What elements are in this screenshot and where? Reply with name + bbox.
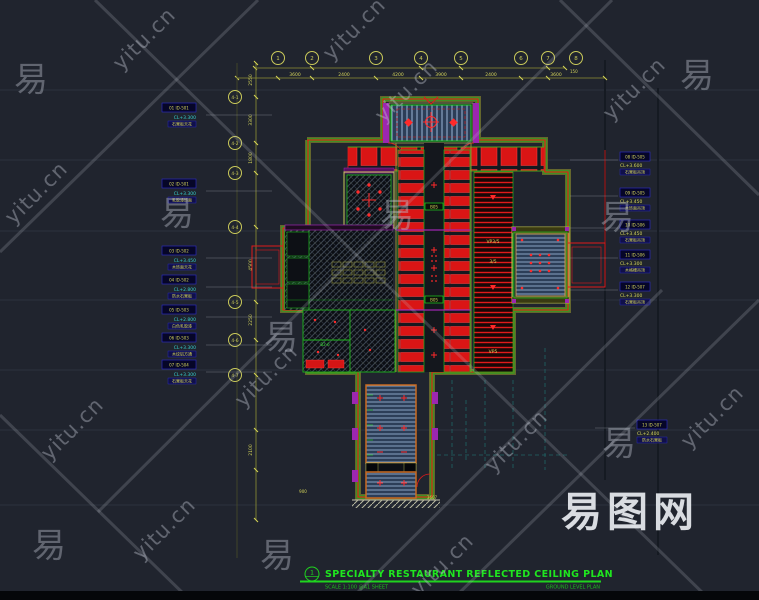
private-room-ceiling [344,168,394,228]
svg-text:4-3: 4-3 [231,171,238,177]
svg-text:防水石膏板: 防水石膏板 [172,293,192,299]
detail-number: 1 [310,570,314,577]
svg-text:5: 5 [459,56,463,62]
svg-text:CL+3.300: CL+3.300 [620,261,642,267]
drawing-subtitle: GROUND LEVEL PLAN [546,585,600,591]
svg-text:2: 2 [310,56,314,62]
dim-text: 4200 [392,72,404,78]
svg-text:石膏板吊顶: 石膏板吊顶 [625,299,645,305]
svg-text:09 ID-505: 09 ID-505 [625,191,645,196]
dim-text: 2400 [485,72,497,78]
stair-dim-text: 900 [299,489,307,494]
dim-text: 3300 [248,114,254,126]
vp-label: VP3/5 [486,239,499,245]
svg-text:4-1: 4-1 [231,95,238,101]
svg-text:4-5: 4-5 [231,300,238,306]
cad-viewport: 3600 2400 4200 3900 2400 3600 150 2550 3… [0,0,759,600]
svg-text:白色乳胶漆: 白色乳胶漆 [172,323,192,329]
svg-text:石膏板天花: 石膏板天花 [172,378,192,384]
svg-text:02 ID-501: 02 ID-501 [169,182,189,187]
svg-text:6: 6 [519,56,523,62]
svg-text:03 ID-502: 03 ID-502 [169,249,189,254]
portico-column-left [383,103,389,143]
ground-hatch [352,500,440,508]
svg-text:08 ID-505: 08 ID-505 [625,155,645,160]
svg-text:石膏板吊顶: 石膏板吊顶 [625,169,645,175]
svg-text:木饰面天花: 木饰面天花 [172,264,192,270]
svg-text:木饰面吊顶: 木饰面吊顶 [625,205,645,211]
ceiling-plan-drawing: 3600 2400 4200 3900 2400 3600 150 2550 3… [0,0,759,600]
dim-text: 4500 [248,259,254,271]
svg-text:06 ID-503: 06 ID-503 [169,336,189,341]
svg-text:石膏板吊顶: 石膏板吊顶 [625,237,645,243]
svg-text:CL+3.300: CL+3.300 [620,293,642,299]
svg-text:CL+3.450: CL+3.450 [620,231,642,237]
svg-text:07 ID-504: 07 ID-504 [169,363,189,368]
bottom-black-bar [0,591,759,600]
aisle-tag: B05 [430,298,438,303]
dim-text: 3600 [289,72,301,78]
svg-text:CL+3.300: CL+3.300 [174,372,196,378]
vp-label: 3/5 [489,259,496,265]
svg-text:乳胶漆饰面: 乳胶漆饰面 [172,197,192,203]
room-tag: B2-6 [320,342,330,347]
drawing-scale: SCALE 1:100 @A1 SHEET [325,585,389,591]
dim-text: 2100 [248,444,254,456]
svg-text:CL+3.450: CL+3.450 [174,258,196,264]
dim-text: 3900 [435,72,447,78]
svg-text:CL+2.400: CL+2.400 [637,431,659,437]
svg-text:CL+3.450: CL+3.450 [620,199,642,205]
blue-slat-room [512,227,569,303]
svg-text:CL+3.600: CL+3.600 [620,163,642,169]
dim-text: 2250 [248,314,254,326]
svg-text:11 ID-506: 11 ID-506 [625,253,645,258]
svg-text:石膏板天花: 石膏板天花 [172,121,192,127]
svg-text:4-4: 4-4 [231,225,238,231]
svg-text:10 ID-506: 10 ID-506 [625,223,645,228]
svg-text:CL+2.800: CL+2.800 [174,317,196,323]
dim-text-small: 150 [570,69,578,74]
svg-text:CL+2.800: CL+2.800 [174,287,196,293]
svg-text:木格栅吊顶: 木格栅吊顶 [625,267,645,273]
svg-text:3: 3 [374,56,378,62]
svg-text:01 ID-501: 01 ID-501 [169,106,189,111]
svg-text:1: 1 [276,56,280,62]
svg-text:8: 8 [574,56,578,62]
drawing-title: SPECIALTY RESTAURANT REFLECTED CEILING P… [325,569,613,580]
svg-text:4: 4 [419,56,423,62]
stair-dim-text: 3607 [427,495,438,500]
vp-label: VP5 [489,349,498,355]
svg-text:木纹铝方通: 木纹铝方通 [172,351,192,357]
dim-text: 2550 [248,74,254,86]
svg-text:4-6: 4-6 [231,338,238,344]
svg-text:12 ID-507: 12 ID-507 [625,285,645,290]
svg-text:05 ID-503: 05 ID-503 [169,308,189,313]
aisle-tag: B05 [430,205,438,210]
svg-text:13 ID-507: 13 ID-507 [642,423,662,428]
svg-text:CL+3.300: CL+3.300 [174,191,196,197]
striped-corridor-ceiling: VP3/5 3/5 VP5 [474,172,513,372]
svg-text:4-2: 4-2 [231,141,238,147]
svg-text:CL+3.300: CL+3.300 [174,115,196,121]
svg-text:CL+3.300: CL+3.300 [174,345,196,351]
svg-text:防水石膏板: 防水石膏板 [642,437,662,443]
bottom-left-rooms: B2-6 [303,310,395,372]
dim-text: 3600 [550,72,562,78]
dim-text: 2400 [338,72,350,78]
svg-text:04 ID-502: 04 ID-502 [169,278,189,283]
